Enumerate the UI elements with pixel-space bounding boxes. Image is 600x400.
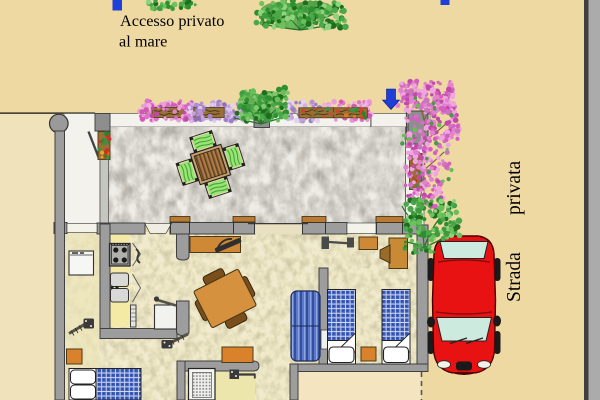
svg-text:privata: privata — [504, 161, 525, 215]
svg-text:Strada: Strada — [504, 252, 525, 302]
svg-text:al mare: al mare — [119, 32, 167, 51]
svg-text:Accesso privato: Accesso privato — [120, 11, 224, 30]
